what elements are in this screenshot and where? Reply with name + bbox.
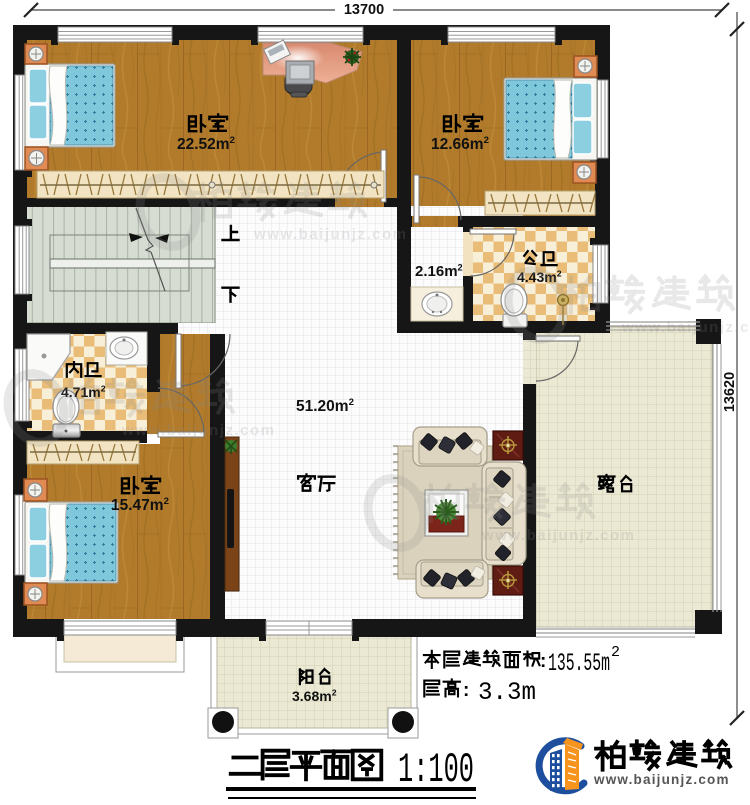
svg-text:www.baijunjz.com: www.baijunjz.com [621, 319, 750, 336]
svg-text:1:100: 1:100 [398, 746, 474, 794]
svg-text:www.baijunjz.com: www.baijunjz.com [481, 527, 635, 544]
svg-text:15.47m2: 15.47m2 [111, 496, 169, 514]
svg-text:2.16m2: 2.16m2 [415, 262, 463, 280]
svg-text:www.baijunjz.com: www.baijunjz.com [253, 226, 407, 243]
svg-text:13700: 13700 [344, 2, 384, 18]
svg-text:22.52m2: 22.52m2 [177, 135, 235, 153]
svg-text::: : [540, 651, 546, 672]
svg-text::: : [463, 680, 469, 701]
svg-text:12.66m2: 12.66m2 [431, 135, 489, 153]
svg-text:3.68m2: 3.68m2 [292, 688, 337, 704]
svg-text:www.baijunjz.com: www.baijunjz.com [593, 772, 730, 787]
svg-text:2: 2 [611, 644, 620, 661]
svg-text:13620: 13620 [722, 372, 738, 412]
svg-text:www.baijunjz.com: www.baijunjz.com [121, 422, 275, 439]
svg-text:3.3m: 3.3m [478, 678, 536, 707]
svg-text:51.20m2: 51.20m2 [296, 397, 354, 415]
svg-text:135.55m: 135.55m [548, 649, 610, 678]
